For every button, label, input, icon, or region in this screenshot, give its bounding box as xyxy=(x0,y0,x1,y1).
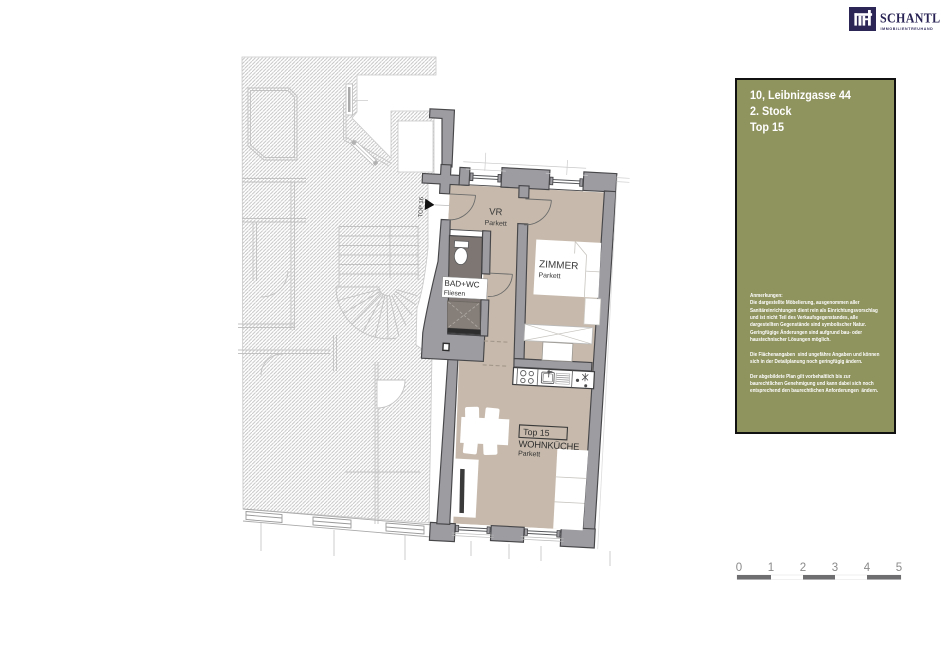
svg-text:VR: VR xyxy=(489,207,503,219)
svg-text:Parkett: Parkett xyxy=(484,220,507,228)
svg-text:TOP 16: TOP 16 xyxy=(418,196,425,217)
svg-text:3: 3 xyxy=(832,562,838,574)
svg-text:Fliesen: Fliesen xyxy=(444,290,466,298)
svg-text:0: 0 xyxy=(736,562,742,574)
svg-text:1: 1 xyxy=(768,562,774,574)
svg-text:2: 2 xyxy=(800,562,806,574)
svg-text:BAD+WC: BAD+WC xyxy=(444,279,480,290)
svg-text:Parkett: Parkett xyxy=(538,272,561,280)
svg-text:4: 4 xyxy=(864,562,871,574)
svg-text:Parkett: Parkett xyxy=(518,450,541,458)
svg-text:ZIMMER: ZIMMER xyxy=(539,259,579,272)
svg-text:5: 5 xyxy=(896,562,902,574)
svg-text:Top 15: Top 15 xyxy=(523,427,550,438)
